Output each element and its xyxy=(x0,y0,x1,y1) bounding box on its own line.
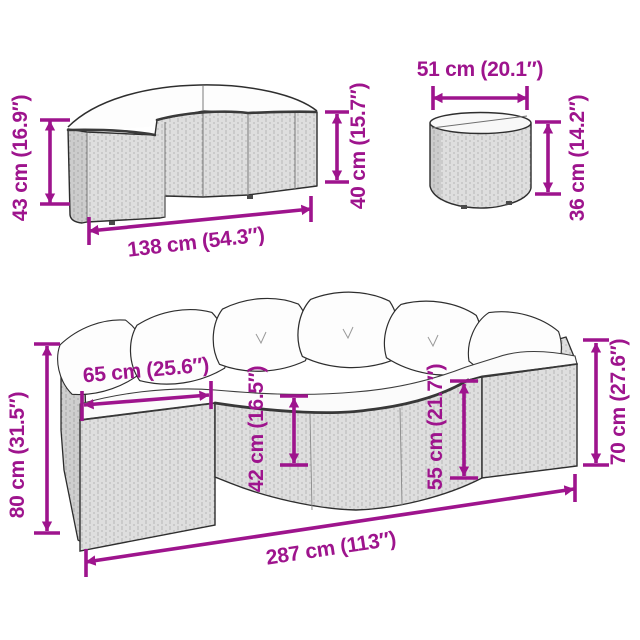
sofa-height-label: 80 cm (31.5″) xyxy=(6,392,30,518)
table-top-surface xyxy=(430,113,531,134)
product-dimension-diagram: 43 cm (16.9″) 138 cm (54.3″) 40 cm (15.7… xyxy=(0,0,640,640)
sofa-55-label: 55 cm (21.7″) xyxy=(424,364,448,490)
sofa-42-label: 42 cm (16.5″) xyxy=(245,366,269,492)
table-left-shade xyxy=(430,124,441,201)
sofa-front-left-panel xyxy=(80,403,215,551)
table-diameter-label: 51 cm (20.1″) xyxy=(417,58,543,82)
bench-left-shade xyxy=(68,129,87,223)
bench-right-height-label: 40 cm (15.7″) xyxy=(347,83,371,209)
sofa-drawing xyxy=(48,290,577,551)
bench-drawing xyxy=(68,85,317,225)
table-drawing xyxy=(430,113,531,210)
table-height-label: 36 cm (14.2″) xyxy=(566,95,590,221)
bench-height-label: 43 cm (16.9″) xyxy=(9,95,33,221)
table-body xyxy=(430,124,531,208)
cushion xyxy=(211,296,312,373)
sofa-right-panel xyxy=(482,364,577,478)
cushion xyxy=(297,290,400,369)
sofa-right-height-label: 70 cm (27.6″) xyxy=(607,339,631,465)
